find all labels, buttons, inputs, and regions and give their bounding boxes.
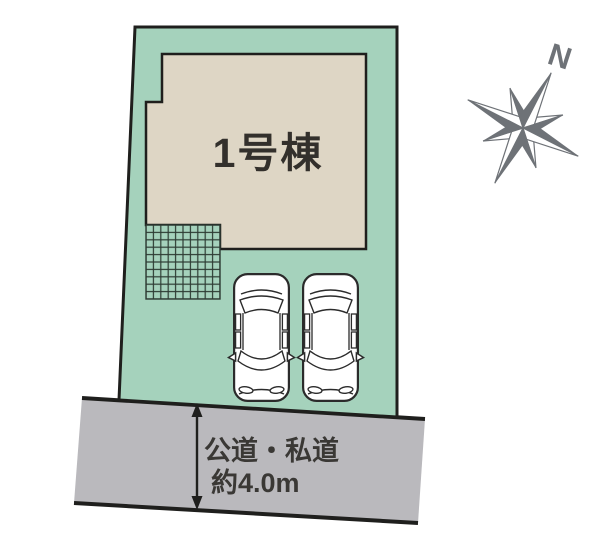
plot-plan-canvas: 1号棟 公道・私道 約4.0m bbox=[0, 0, 600, 553]
plot-plan-drawing: 1号棟 公道・私道 約4.0m bbox=[0, 0, 600, 553]
building-label: 1号棟 bbox=[213, 130, 324, 176]
terrace-grid bbox=[146, 225, 220, 299]
car-2-icon bbox=[298, 274, 364, 401]
terrace-grid-tiles bbox=[146, 225, 220, 299]
road-type-label: 公道・私道 bbox=[204, 435, 339, 466]
road-width-label: 約4.0m bbox=[211, 467, 300, 498]
car-1-icon bbox=[229, 274, 295, 401]
